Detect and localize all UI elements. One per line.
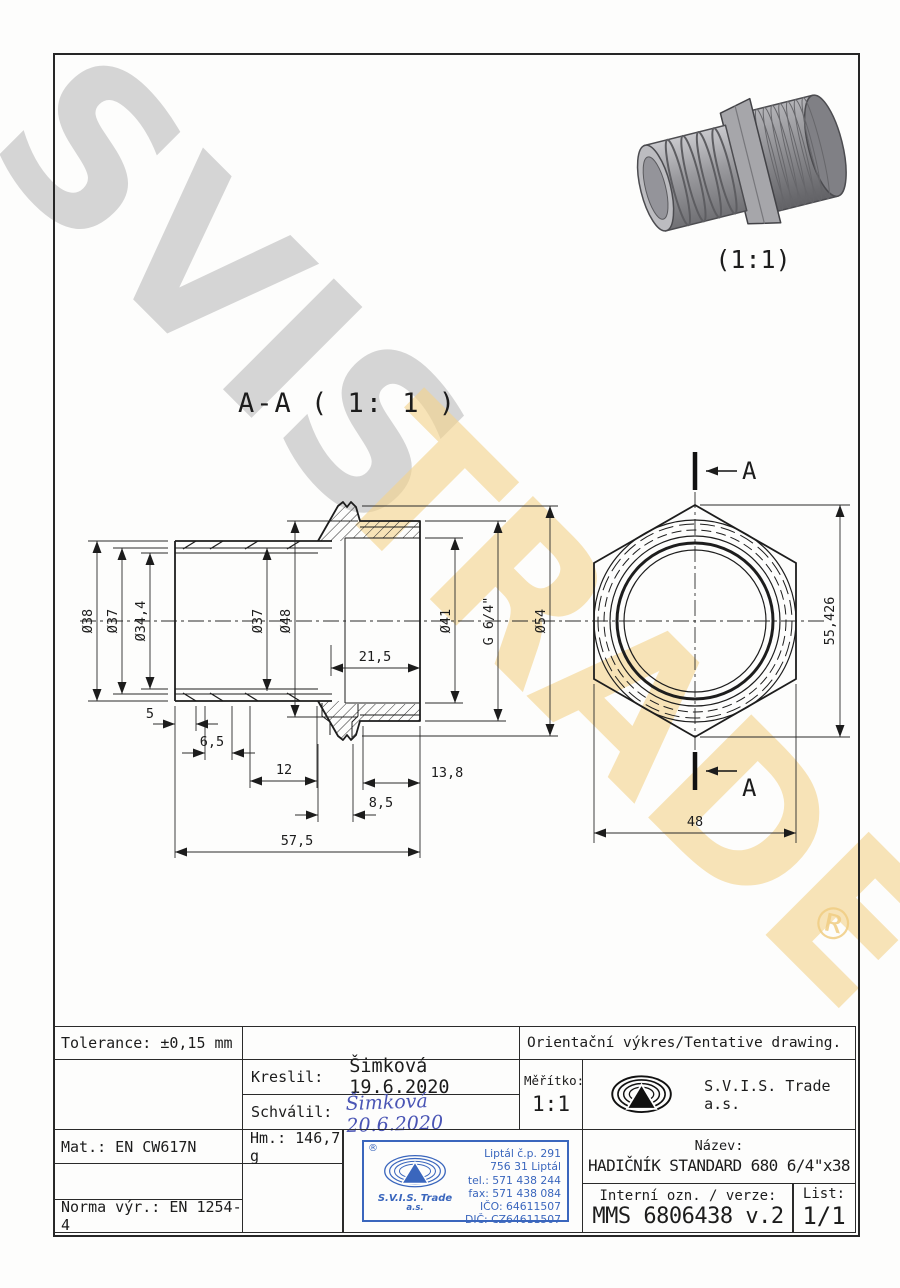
dim-d48: Ø48 [278, 609, 294, 633]
meritko-cell: Měřítko: 1:1 [519, 1059, 583, 1130]
dim-57-5: 57,5 [281, 833, 314, 849]
tolerance-text: Tolerance: ±0,15 mm [61, 1034, 233, 1052]
stamp-ico: IČO: 64611507 [465, 1200, 561, 1213]
tentative-drawing-text: Orientační výkres/Tentative drawing. [527, 1035, 841, 1051]
interni-value: MMS 6806438 v.2 [592, 1204, 783, 1229]
empty-cell-row1 [242, 1026, 520, 1060]
material-cell: Mat.: EN CW617N [53, 1129, 243, 1164]
stamp-registered-icon: ® [368, 1143, 378, 1154]
dim-d37: Ø37 [105, 609, 121, 633]
stamp-dic: DIČ: CZ64611507 [465, 1213, 561, 1226]
norma-cell: Norma výr.: EN 1254-4 [53, 1199, 243, 1233]
part-name: HADIČNÍK STANDARD 680 6/4"x38 [588, 1156, 850, 1175]
drawing-page: SVIS TRADE ® [0, 0, 900, 1288]
empty-cell-row4-left [53, 1163, 243, 1200]
dim-d37-inner: Ø37 [250, 609, 266, 633]
schvalil-label: Schválil: [251, 1103, 332, 1121]
drawing-canvas: (1:1) A-A ( 1: 1 ) [0, 0, 900, 1030]
tolerance-cell: Tolerance: ±0,15 mm [53, 1026, 243, 1060]
kreslil-label: Kreslil: [251, 1068, 323, 1086]
material-text: Mat.: EN CW617N [61, 1138, 196, 1156]
section-mark-a-top: A [742, 457, 757, 485]
stamp-address-line2: 756 31 Liptál [465, 1160, 561, 1173]
stamp-area-divider [342, 1129, 344, 1233]
company-logo-cell: S.V.I.S. Trade a.s. [582, 1059, 856, 1130]
interni-label: Interní ozn. / verze: [599, 1188, 776, 1204]
dim-d54: Ø54 [533, 609, 549, 633]
tentative-drawing-cell: Orientační výkres/Tentative drawing. [519, 1026, 856, 1060]
company-stamp: ® S.V.I.S. Trade a.s. Liptál č.p. 291 75… [362, 1140, 569, 1222]
dim-hex-height: 55,426 [822, 597, 838, 646]
nazev-cell: Název: HADIČNÍK STANDARD 680 6/4"x38 [582, 1129, 856, 1184]
stamp-company-as: a.s. [372, 1204, 458, 1213]
interni-cell: Interní ozn. / verze: MMS 6806438 v.2 [582, 1183, 794, 1233]
stamp-address-line1: Liptál č.p. 291 [465, 1147, 561, 1160]
company-name: S.V.I.S. Trade a.s. [704, 1077, 855, 1113]
pictorial-3d-view [626, 79, 858, 253]
schvalil-cell: Schválil: Šimková 20.6.2020 [242, 1094, 520, 1130]
svis-logo-icon [609, 1069, 674, 1121]
dim-8-5: 8,5 [369, 795, 393, 811]
dim-d344: Ø34,4 [133, 601, 149, 642]
dim-d38: Ø38 [80, 609, 96, 633]
pictorial-scale-label: (1:1) [715, 245, 790, 274]
list-label: List: [803, 1186, 845, 1202]
dim-d41: Ø41 [438, 609, 454, 633]
dim-g64: G 6/4" [481, 597, 497, 646]
dim-hex-width: 48 [687, 814, 703, 830]
stamp-tel: tel.: 571 438 244 [465, 1174, 561, 1187]
meritko-value: 1:1 [532, 1092, 570, 1116]
hex-end-view: A A 55,426 48 [565, 452, 850, 843]
norma-text: Norma výr.: EN 1254-4 [61, 1198, 242, 1234]
stamp-fax: fax: 571 438 084 [465, 1187, 561, 1200]
side-section-view: Ø38 Ø37 Ø34,4 Ø37 Ø48 Ø41 G 6/4" Ø54 21,… [80, 502, 565, 858]
stamp-logo-icon [382, 1154, 448, 1190]
nazev-label: Název: [695, 1138, 744, 1154]
meritko-label: Měřítko: [520, 1073, 584, 1088]
dim-13-8: 13,8 [431, 765, 464, 781]
list-value: 1/1 [802, 1202, 845, 1230]
dim-21-5: 21,5 [359, 649, 392, 665]
dim-12: 12 [276, 762, 292, 778]
dim-5: 5 [146, 706, 154, 722]
dim-6-5: 6,5 [200, 734, 224, 750]
section-view-title: A-A ( 1: 1 ) [238, 388, 457, 419]
empty-cell-row2-left [53, 1059, 243, 1130]
list-cell: List: 1/1 [792, 1183, 856, 1233]
section-mark-a-bottom: A [742, 774, 757, 802]
